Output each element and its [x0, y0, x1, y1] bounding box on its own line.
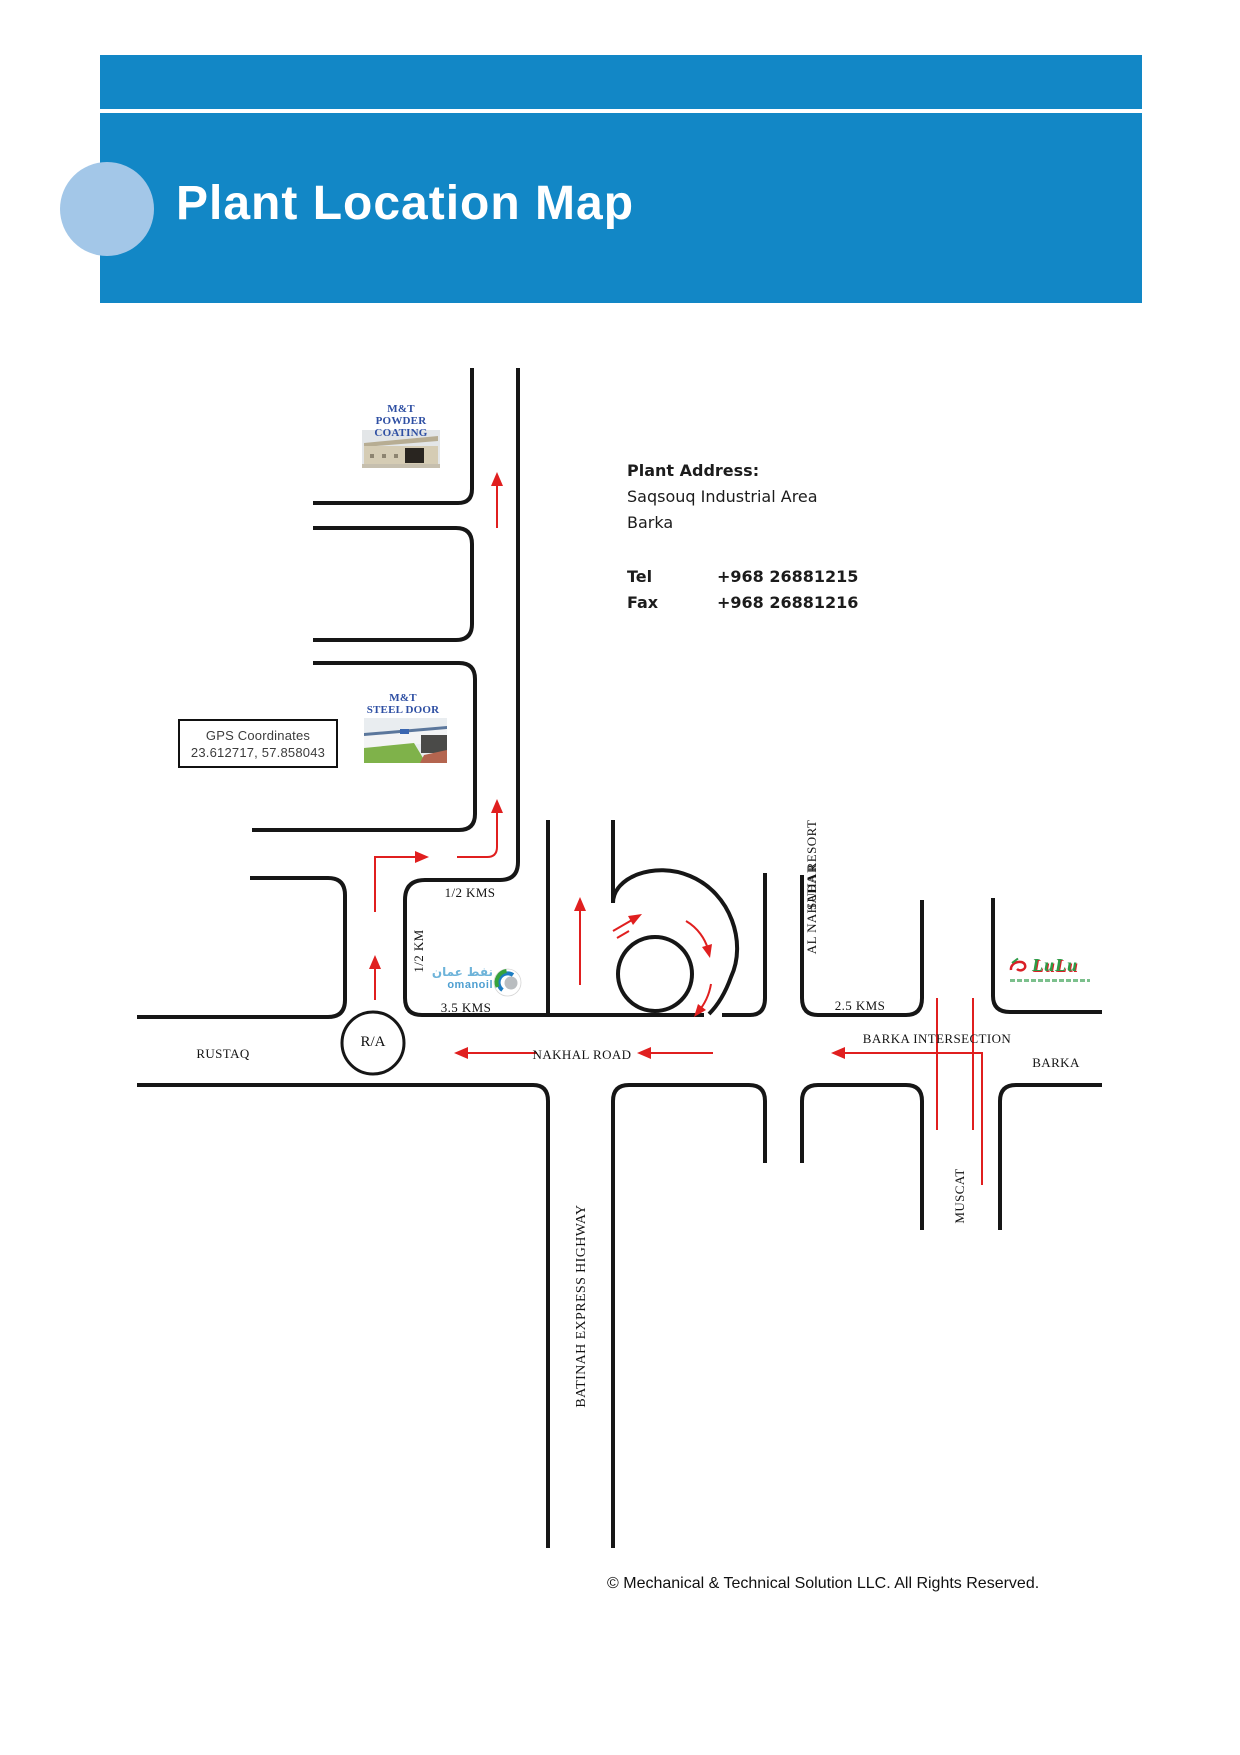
fax-label: Fax — [627, 590, 717, 616]
gps-line2: 23.612717, 57.858043 — [180, 744, 336, 761]
gps-coordinates-box: GPS Coordinates 23.612717, 57.858043 — [178, 719, 338, 768]
label-barka-intersection: BARKA INTERSECTION — [862, 1031, 1012, 1047]
omanoil-latin-text: omanoil — [420, 979, 493, 992]
label-half-kms: 1/2 KMS — [440, 885, 500, 901]
plant-address-block: Plant Address: Saqsouq Industrial Area B… — [627, 458, 858, 616]
plant-address-line1: Saqsouq Industrial Area — [627, 484, 858, 510]
lulu-logo-icon — [1008, 957, 1032, 979]
label-barka: BARKA — [1026, 1055, 1086, 1071]
copyright-text: Mechanical & Technical Solution LLC. All… — [619, 1575, 1039, 1592]
lulu-logo-caption-bar — [1010, 979, 1090, 982]
copyright-footer: © Mechanical & Technical Solution LLC. A… — [607, 1575, 1039, 1593]
fax-value: +968 26881216 — [717, 590, 858, 616]
lulu-logo: LuLu — [1008, 955, 1092, 985]
steel-door-photo — [364, 718, 447, 768]
tel-value: +968 26881215 — [717, 564, 858, 590]
label-batinah-highway: BATINAH EXPRESS HIGHWAY — [574, 1186, 590, 1426]
label-half-km: 1/2 KM — [411, 906, 427, 996]
lulu-logo-text: LuLu — [1032, 955, 1078, 976]
plant-location-map-page: Plant Location Map — [0, 0, 1240, 1755]
gps-line1: GPS Coordinates — [180, 727, 336, 744]
powder-coating-label: M&T POWDER COATING — [351, 403, 451, 439]
label-rustaq: RUSTAQ — [193, 1046, 253, 1062]
tel-label: Tel — [627, 564, 717, 590]
label-roundabout: R/A — [353, 1034, 393, 1051]
omanoil-arabic-text: نفط عمان — [420, 966, 493, 979]
label-2-5-kms: 2.5 KMS — [830, 998, 890, 1014]
tel-row: Tel +968 26881215 — [627, 564, 858, 590]
steel-door-label: M&T STEEL DOOR — [353, 692, 453, 716]
label-al-nahada-resort: AL NAHADA RESORT — [804, 812, 820, 962]
plant-address-heading: Plant Address: — [627, 458, 858, 484]
fax-row: Fax +968 26881216 — [627, 590, 858, 616]
omanoil-logo-text: نفط عمان omanoil — [420, 966, 493, 992]
label-nakhal-road: NAKHAL ROAD — [532, 1047, 632, 1063]
road-map-drawing — [0, 0, 1240, 1755]
copyright-symbol: © — [607, 1575, 619, 1592]
label-3-5-kms: 3.5 KMS — [436, 1000, 496, 1016]
label-muscat: MUSCAT — [952, 1136, 968, 1256]
plant-address-line2: Barka — [627, 510, 858, 536]
omanoil-logo-icon — [492, 967, 523, 1003]
